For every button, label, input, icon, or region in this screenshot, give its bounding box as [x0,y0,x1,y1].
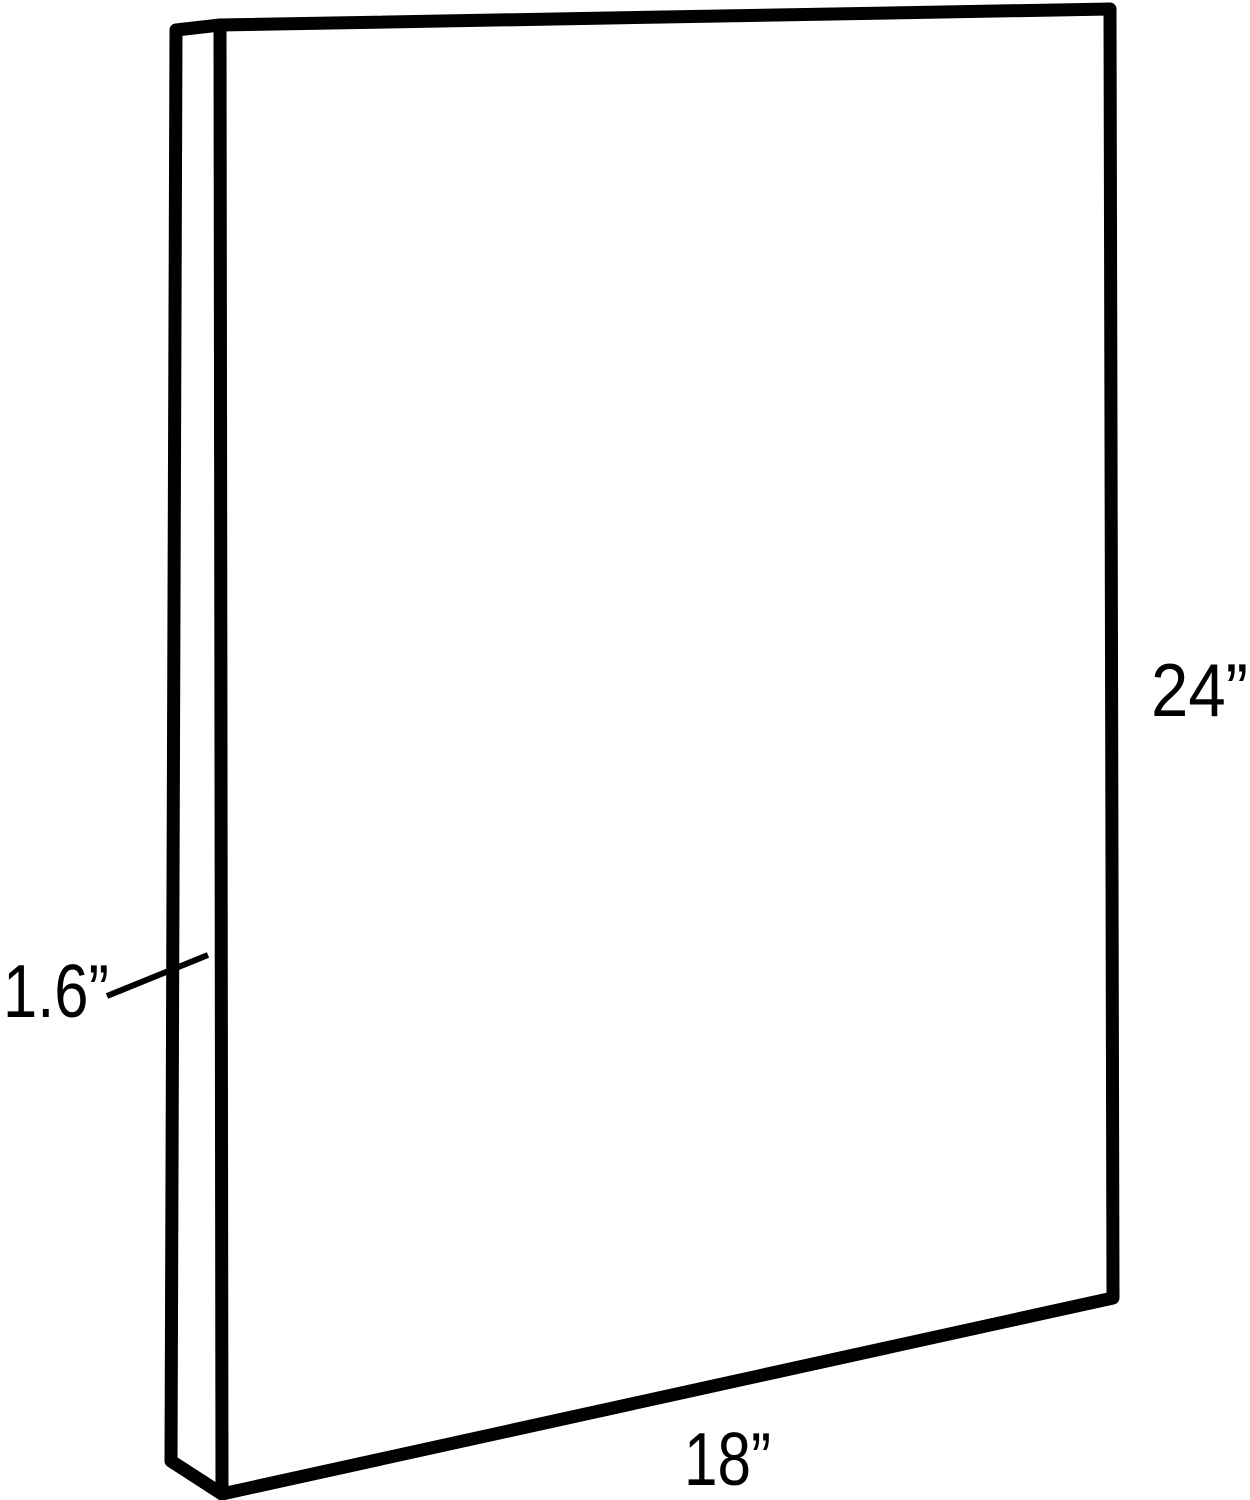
dimension-diagram: 24” 1.6” 18” [0,0,1250,1500]
panel-outline [171,9,1113,1494]
depth-label: 1.6” [3,949,109,1033]
depth-leader-line [107,955,208,996]
width-label: 18” [684,1417,771,1500]
panel-drawing-svg: 24” 1.6” 18” [0,0,1250,1500]
height-label: 24” [1151,648,1248,732]
front-left-edge-line [220,25,222,1494]
